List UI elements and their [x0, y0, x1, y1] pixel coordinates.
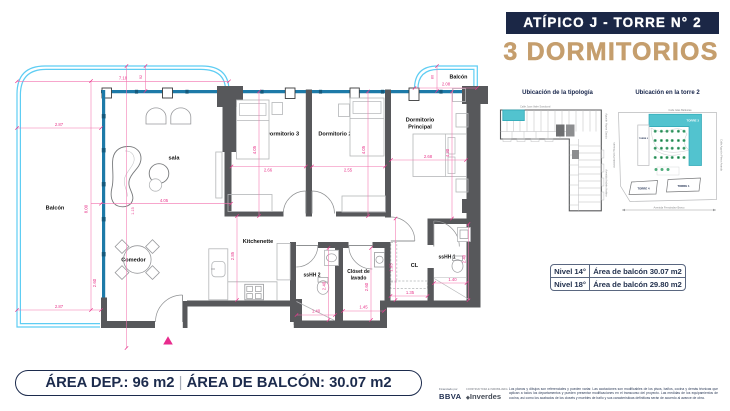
svg-text:2.60: 2.60 — [92, 278, 97, 287]
svg-text:CL: CL — [411, 263, 419, 269]
svg-text:Dormitorio: Dormitorio — [406, 118, 435, 124]
svg-text:Comedor: Comedor — [121, 258, 146, 264]
svg-text:Avenida Fernández Bravo: Avenida Fernández Bravo — [653, 205, 685, 209]
svg-text:1.35: 1.35 — [406, 290, 415, 295]
svg-text:TORRE 3: TORRE 3 — [687, 119, 700, 123]
svg-text:2.40: 2.40 — [322, 281, 327, 290]
svg-text:2.66: 2.66 — [264, 167, 273, 172]
svg-text:2.55: 2.55 — [344, 167, 353, 172]
svg-text:lavado: lavado — [351, 276, 367, 282]
svg-text:4.05: 4.05 — [252, 145, 257, 154]
svg-text:4.05: 4.05 — [160, 198, 169, 203]
svg-text:Balcón: Balcón — [450, 75, 468, 81]
svg-text:TORRE 2: TORRE 2 — [639, 138, 649, 140]
svg-text:Avenida Petit Thouars: Avenida Petit Thouars — [612, 142, 616, 168]
svg-text:Dormitorio 3: Dormitorio 3 — [266, 132, 299, 138]
svg-text:sala: sala — [169, 156, 181, 162]
svg-text:80: 80 — [431, 75, 435, 79]
svg-text:Principal: Principal — [408, 125, 432, 131]
svg-text:2.87: 2.87 — [55, 122, 64, 127]
svg-text:8.00: 8.00 — [84, 204, 89, 213]
svg-text:Dormitorio 2: Dormitorio 2 — [318, 132, 351, 138]
svg-text:Clóset de: Clóset de — [347, 269, 370, 275]
svg-text:Avenida Andrés Avelino: Avenida Andrés Avelino — [605, 169, 609, 197]
svg-text:92: 92 — [139, 75, 143, 79]
svg-text:1.40: 1.40 — [448, 277, 457, 282]
svg-text:Agustín Hoyos García: Agustín Hoyos García — [605, 113, 609, 139]
svg-text:1.45: 1.45 — [359, 305, 368, 310]
svg-text:4.05: 4.05 — [361, 145, 366, 154]
svg-text:Calle Islas Ballestas: Calle Islas Ballestas — [668, 108, 692, 112]
svg-text:Kitchenette: Kitchenette — [243, 239, 273, 245]
svg-text:Calle Agustín Pérez Aranda: Calle Agustín Pérez Aranda — [720, 139, 724, 171]
svg-text:1.40: 1.40 — [312, 309, 321, 314]
svg-text:ssHH 1: ssHH 1 — [439, 254, 456, 260]
svg-text:1.15: 1.15 — [131, 207, 135, 214]
svg-text:2.08: 2.08 — [442, 82, 451, 87]
svg-text:TORRE 1: TORRE 1 — [677, 184, 690, 188]
svg-text:Balcón: Balcón — [46, 206, 65, 212]
svg-text:2.40: 2.40 — [462, 254, 467, 263]
svg-text:Calle Juan Valer Sandoval: Calle Juan Valer Sandoval — [520, 105, 551, 109]
svg-text:TORRE 4: TORRE 4 — [637, 187, 650, 191]
svg-text:2.68: 2.68 — [424, 154, 433, 159]
svg-text:4.30: 4.30 — [445, 148, 450, 157]
svg-text:2.85: 2.85 — [230, 251, 235, 260]
svg-text:1.95: 1.95 — [389, 263, 394, 272]
svg-text:2.87: 2.87 — [55, 304, 64, 309]
svg-text:2.60: 2.60 — [364, 282, 369, 291]
